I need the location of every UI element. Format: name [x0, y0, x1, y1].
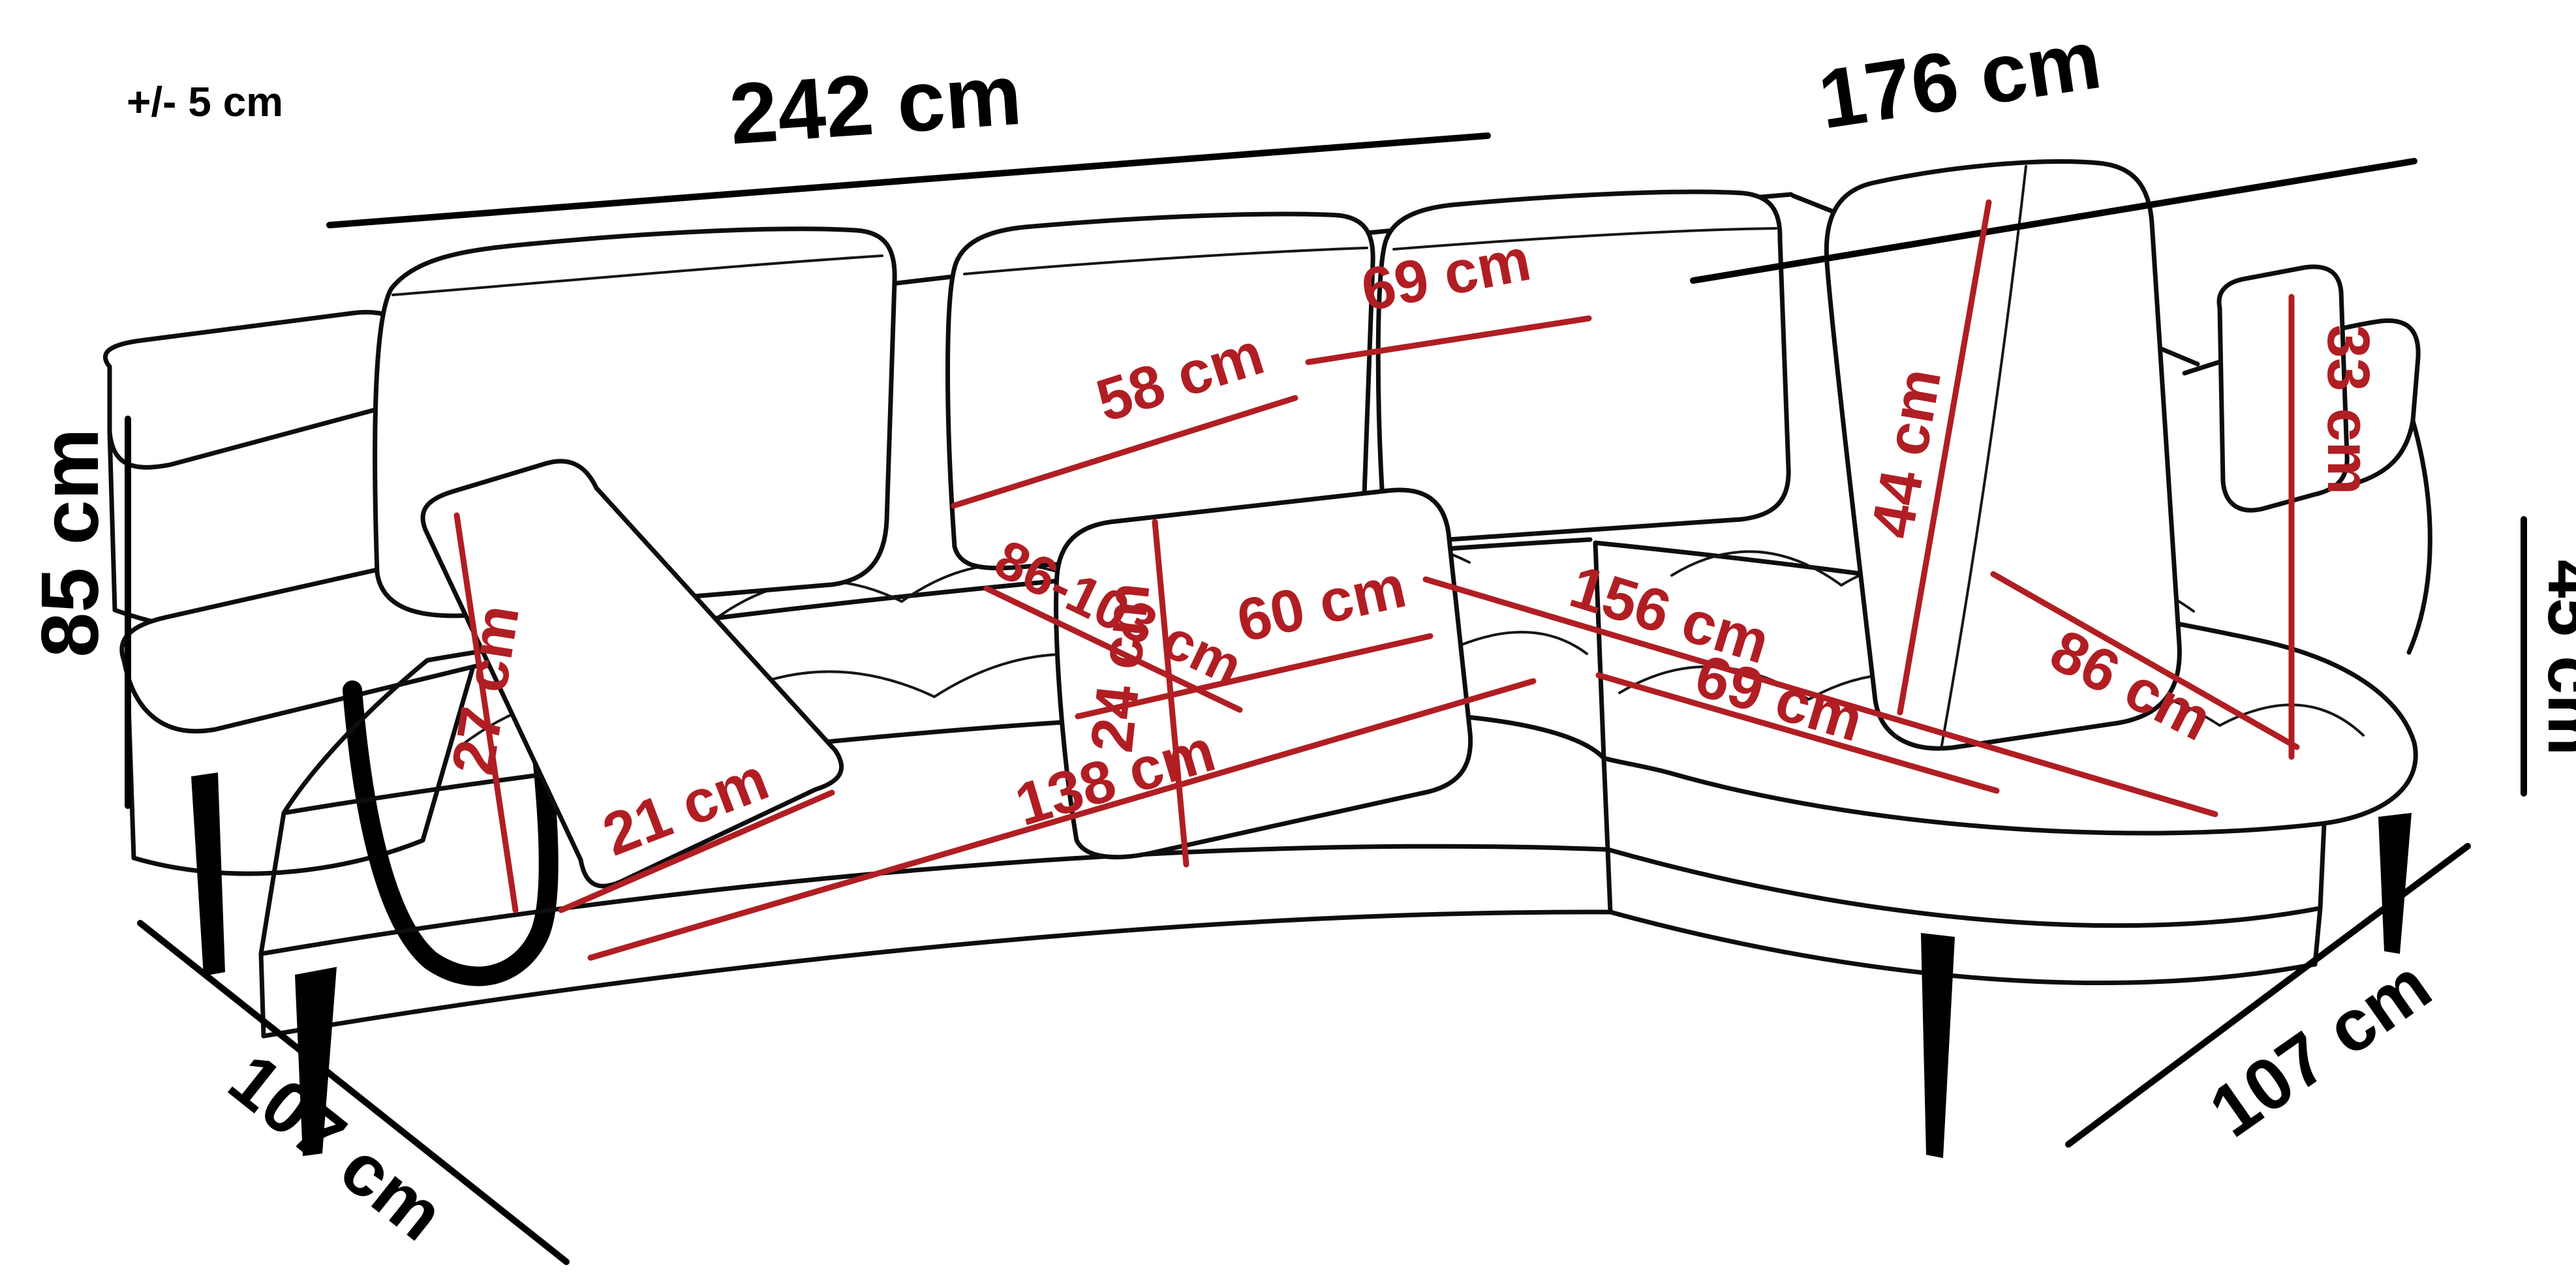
front-band-bottom — [261, 846, 1606, 954]
label-85: 85 cm — [25, 428, 115, 658]
right-arm-side — [2409, 421, 2430, 652]
leg-chaise-front — [1921, 933, 1955, 1158]
leg-far-left — [191, 772, 225, 976]
label-45: 45 cm — [2534, 560, 2576, 756]
front-band-left-edge — [261, 813, 284, 1036]
label-33: 33 cm — [2315, 325, 2382, 495]
label-176: 176 cm — [1813, 12, 2106, 147]
leg-chaise-right — [2378, 813, 2412, 954]
sofa-dimension-diagram: +/- 5 cm 242 cm 176 cm 85 cm 107 cm 107 … — [0, 0, 2576, 1282]
diagram-canvas: +/- 5 cm 242 cm 176 cm 85 cm 107 cm 107 … — [0, 0, 2576, 1282]
label-242: 242 cm — [726, 46, 1024, 162]
tolerance-label: +/- 5 cm — [127, 78, 283, 125]
